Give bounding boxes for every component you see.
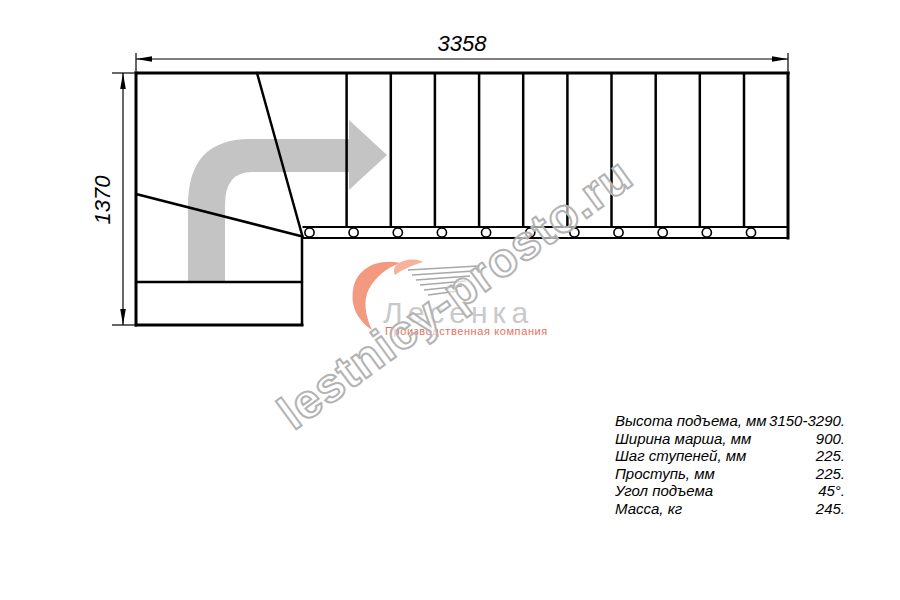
spec-row: Шаг ступеней, мм 225. — [615, 447, 845, 465]
spec-row: Ширина марша, мм 900. — [615, 430, 845, 448]
logo-tagline: Производственная компания — [385, 325, 548, 337]
baluster-circles — [305, 228, 756, 237]
spec-value: 45°. — [773, 482, 845, 500]
dimension-width-label: 3358 — [400, 31, 524, 57]
spec-value: 225. — [773, 465, 845, 483]
spec-row: Угол подъема 45°. — [615, 482, 845, 500]
spec-row: Проступь, мм 225. — [615, 465, 845, 483]
spec-label: Угол подъема — [615, 482, 713, 500]
spec-label: Проступь, мм — [615, 465, 715, 483]
spec-value: 900. — [773, 430, 845, 448]
stringer-strip — [303, 227, 789, 238]
spec-label: Шаг ступеней, мм — [615, 447, 746, 465]
dimension-height-label: 1370 — [90, 138, 114, 262]
spec-label: Высота подъема, мм — [615, 412, 767, 430]
spec-value: 245. — [773, 500, 845, 518]
tread-lines — [347, 73, 744, 227]
spec-label: Масса, кг — [615, 500, 682, 518]
company-logo: Лесенка Производственная компания — [345, 256, 605, 346]
spec-value: 225. — [773, 447, 845, 465]
spec-list: Высота подъема, мм 3150-3290. Ширина мар… — [615, 412, 845, 517]
spec-row: Масса, кг 245. — [615, 500, 845, 518]
canvas: 3358 1370 lestnicy-prosto.ru Лесенка Про… — [0, 0, 900, 600]
spec-row: Высота подъема, мм 3150-3290. — [615, 412, 845, 430]
spec-value: 3150-3290. — [769, 412, 845, 430]
spec-label: Ширина марша, мм — [615, 430, 751, 448]
